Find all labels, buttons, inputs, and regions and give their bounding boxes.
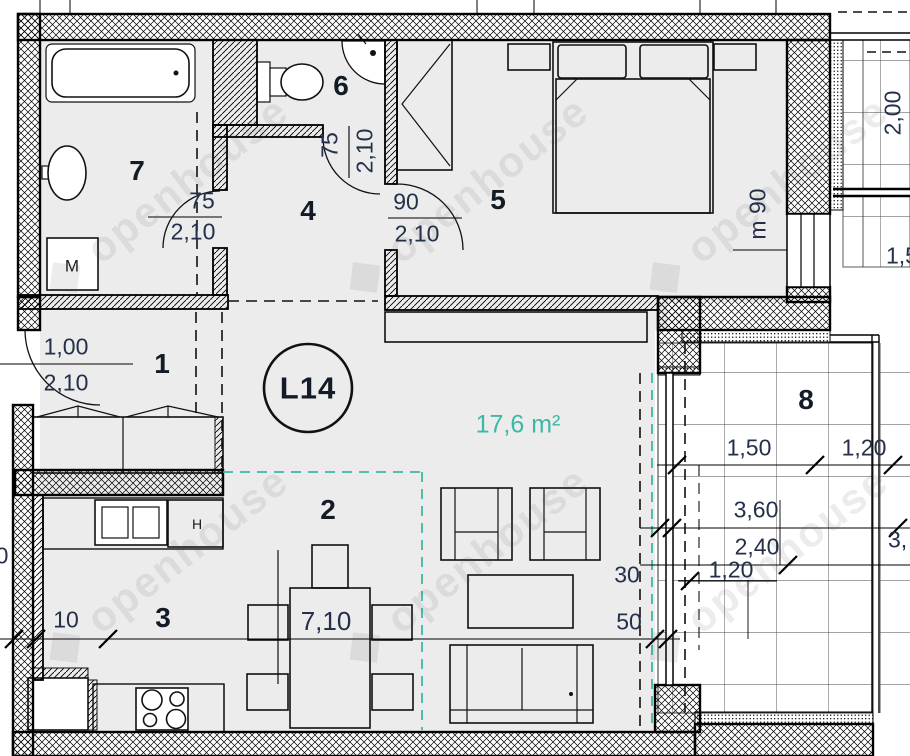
bathtub [46,44,195,102]
bathroom-door-width: 75 [189,190,215,213]
dim-30: 30 [614,564,640,587]
entrance-door-height: 2,10 [44,372,89,395]
dim-balcony-120a: 1,20 [842,437,887,460]
corner-cabinet [28,678,88,730]
window-parapet-note: m 90 [747,188,770,239]
living-area-label: 17,6 m² [476,413,561,438]
dim-total-width: 7,10 [301,608,352,634]
room-label-corridor: 4 [300,197,316,225]
room-label-bathroom: 7 [129,157,145,185]
bedroom-window [787,214,830,287]
partial-dim-right-bottom: 3, [888,529,907,552]
wc-door-width: 75 [319,132,342,158]
dim-balcony-120b: 1,20 [709,559,754,582]
wc-door-height: 2,10 [354,129,377,174]
floor-plan-drawing [0,0,910,756]
room-label-wc: 6 [333,72,349,100]
bathroom-door-height: 2,10 [171,221,216,244]
room-label-bedroom: 5 [490,186,506,214]
dim-wall: 10 [53,609,79,632]
unit-label: L14 [280,373,336,404]
washing-machine-label: M [65,258,79,275]
room-label-dining: 2 [320,496,336,524]
stove [136,688,188,730]
dim-balcony-240: 2,40 [735,536,780,559]
room-label-kitchen: 3 [155,604,171,632]
dim-balcony-360: 3,60 [734,499,779,522]
partial-dim-left: 0 [0,545,8,568]
partial-dim-right-top: 1,5 [886,245,910,268]
bedroom-door-width: 90 [393,191,419,214]
entrance-door-width: 1,00 [44,336,89,359]
dim-balcony-150: 1,50 [727,437,772,460]
dim-50: 50 [616,611,642,634]
room-label-hall: 1 [154,350,170,378]
room-label-balcony: 8 [798,386,814,414]
neighbor-dim-200: 2,00 [882,91,905,136]
fridge-label: H [192,517,202,531]
bedroom-door-height: 2,10 [395,223,440,246]
floor-plan: openhouse openhouse openhouse openhouse … [0,0,910,756]
